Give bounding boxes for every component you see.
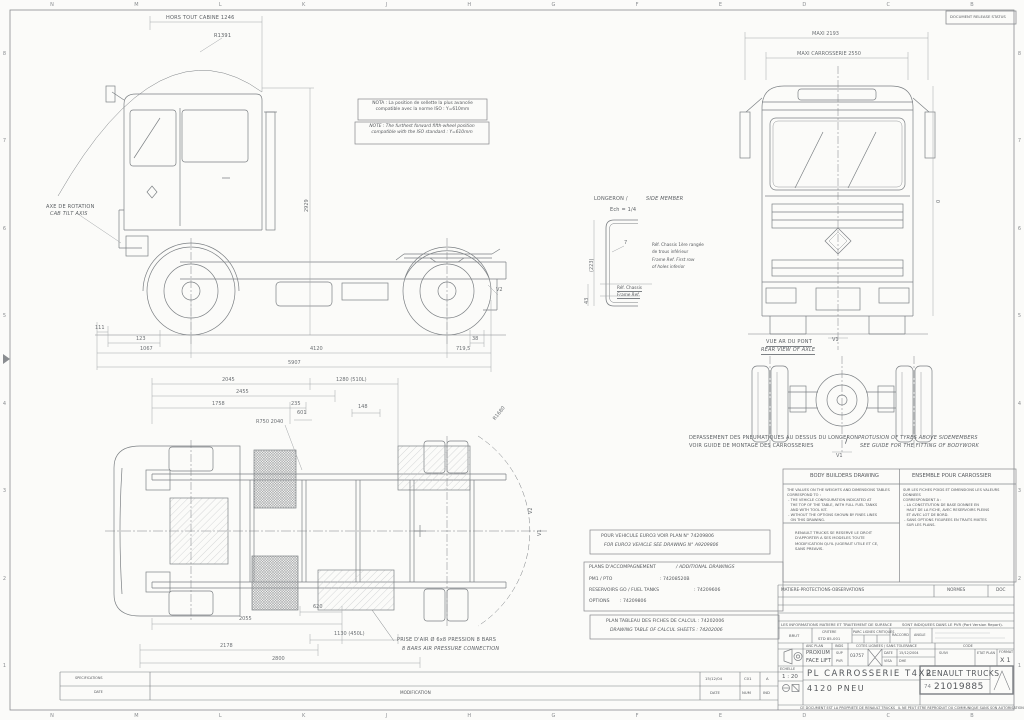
tb-etat: ETAT PLAN [977,651,995,655]
tb-critere: CRITERE [822,630,836,634]
dim-2055: 2055 [239,616,252,622]
longeron-title-en: SIDE MEMBER [646,196,683,202]
mod-header-modification: MODIFICATION [400,690,431,695]
tb-date-val: 15/12/2004 [899,651,919,655]
spec-date-label: DATE [94,690,103,694]
note-box-borders [355,99,1016,639]
dim-2178: 2178 [220,643,233,649]
release-stamp: DOCUMENT RELEASE STATUS [950,14,1006,19]
dim-v1-axle: V1 [836,453,843,459]
grid-row-label: 5 [1018,313,1021,319]
euro3-note-en: FOR EURO3 VEHICLE SEE DRAWING N° A920980… [604,543,718,548]
grid-col-label: H [467,713,471,719]
dim-5907: 5907 [288,360,301,366]
tb-critere-val: STD 85-001 [818,636,840,641]
dim-43: 43 [584,298,590,304]
grid-col-label: H [467,2,471,8]
grid-col-label: L [219,2,222,8]
tb-raccord: RACCORD [892,633,909,637]
ref-row-en1: Frame Ref. First row [652,257,694,262]
grid-row-label: 8 [1018,51,1021,57]
dim-620: 620 [313,604,323,610]
grid-row-label: 1 [1018,663,1021,669]
note-box-en: NOTE : The furthest forward fifth-wheel … [356,124,488,135]
dim-111: 111 [95,325,105,331]
grid-col-label: G [551,713,555,719]
dim-719: 719,5 [456,346,470,352]
tb-echelle-label: ECHELLE [780,667,795,671]
grid-row-label: 6 [1018,226,1021,232]
air-note-en: 8 BARS AIR PRESSURE CONNECTION [402,646,499,652]
additional-row-value: : 74209806 [620,599,646,604]
tb-code: CODE [963,644,973,648]
additional-row-label: OPTIONS [589,599,610,604]
cab-tilt-axis-fr: AXE DE ROTATION [46,204,95,210]
tb-date-label: DATE [884,651,893,655]
dim-maxi-2193: MAXI 2193 [812,31,839,37]
dim-web-7: 7 [624,240,627,246]
grid-row-label: 7 [3,138,6,144]
grid-col-label: K [302,713,305,719]
drawing-sheet: NMLKJHGFEDCB NMLKJHGFEDCB 87654321 87654… [0,0,1024,720]
grid-col-label: B [970,713,973,719]
mod-header-ind: IND [763,690,770,695]
grid-col-label: D [802,713,806,719]
dim-2045: 2045 [222,377,235,383]
tb-format-val: X 1 [1000,656,1011,664]
grid-cols-top: NMLKJHGFEDCB [10,0,1014,9]
grid-col-label: N [50,2,54,8]
bodybuilders-text-en: THE VALUES ON THE WEIGHTS AND DIMENSIONS… [787,488,897,523]
grid-col-label: J [386,2,387,8]
grid-row-label: 1 [3,663,6,669]
mod-header-num: NUM [742,690,751,695]
drawing-linework [0,0,1024,720]
dim-223: (223) [589,259,595,272]
mod-date-value: 15/12/04 [705,676,722,681]
longeron-scale: Ech = 1/4 [610,207,636,213]
calc-note-en: DRAWING TABLE OF CALCUL SHEETS : 7420200… [610,628,723,633]
tb-sup: SUP [836,651,843,655]
euro3-note-fr: POUR VEHICULE EURO3 VOIR PLAN N° 7420980… [601,534,714,539]
bodybuilders-reserve: RENAULT TRUCKS SE RESERVE LE DROIT D'APP… [795,530,897,551]
grid-col-label: C [886,2,890,8]
symbol-icons [783,685,800,692]
tb-brut: BRUT [789,633,799,638]
first-angle-projection-icon [784,649,802,664]
grid-col-label: D [802,2,806,8]
dim-maxi-carrosserie: MAXI CARROSSERIE 2550 [797,51,861,57]
tb-parc: PARC LIGNES CRITIQUES [853,630,894,634]
rear-axle-label-en: REAR VIEW OF AXLE [761,347,815,355]
tb-anc-plan: ANC PLAN [806,644,823,648]
dim-123: 123 [136,336,146,342]
tyre-note-en2: SEE GUIDE FOR THE FITTING OF BODYWORK [860,443,979,449]
grid-row-label: 3 [3,488,6,494]
grid-rows-right: 87654321 [1015,10,1024,710]
grid-col-label: L [219,713,222,719]
tb-visa-val: DHE [899,659,906,663]
grid-col-label: E [719,713,722,719]
tyre-note-en1: PROTUSION OF TYRES ABOVE SIDEMEMBERS [858,435,978,441]
grid-col-label: M [134,2,138,8]
tb-suivi: SUIVI [939,651,948,655]
drawing-number-prefix: 74 [924,684,931,690]
ref-row-fr1: Réf. Chassis 1ère rangée [652,242,704,247]
tyre-note-separator: / [845,436,848,446]
tb-visa-label: VISA [884,659,892,663]
dim-2800: 2800 [272,656,285,662]
mod-num-value: C01 [744,676,751,681]
bodybuilders-text-fr: SUR LES FICHES POIDS ET DIMENSIONS LES V… [903,488,1015,528]
tb-model1: PROXIUM [806,650,830,656]
dim-v2-plan: V2 [528,507,534,514]
dim-1758: 1758 [212,401,225,407]
additional-row-value: : 74209606 [694,588,720,593]
ref-row-fr2: de trous inférieur [652,249,688,254]
dim-1130: 1130 (450L) [334,631,365,637]
dim-38: 38 [472,336,478,342]
front-view [740,66,935,350]
dim-zero-front: 0 [936,200,942,203]
additional-title-en: / ADDITIONAL DRAWINGS [676,565,735,570]
grid-row-label: 8 [3,51,6,57]
additional-title-fr: PLANS D'ACCOMPAGNEMENT [589,565,656,570]
dim-148: 148 [358,404,368,410]
tb-cotes: COTES LIGNEES / SANS TOLERANCE [856,644,917,648]
rear-axle-label-fr: VUE AR DU PONT [766,339,812,347]
grid-col-label: K [302,2,305,8]
calc-note-fr: PLAN TABLEAU DES FICHES DE CALCUL : 7420… [606,619,724,624]
tb-info-right: SONT INDIQUEES DANS LE PVR (Part Version… [902,622,1003,627]
dim-cab-overall: HORS TOUT CABINE 1246 [166,15,234,21]
grid-col-label: G [551,2,555,8]
grid-row-label: 2 [1018,576,1021,582]
tyre-note-fr1: DEPASSEMENT DES PNEUMATIQUES AU DESSUS D… [689,435,858,441]
grid-col-label: J [386,713,387,719]
additional-row-value: : 74208520B [660,577,690,582]
dim-1067: 1067 [140,346,153,352]
mod-ind-value: A [766,676,769,681]
tb-inds: INDS [835,644,843,648]
bodybuilders-header-en: BODY BUILDERS DRAWING [810,473,879,479]
ref-chassis-fr: Réf. Chassis [617,285,642,292]
dim-cab-radius: R1391 [214,33,231,39]
dim-235: 235 [291,401,301,407]
dim-v1-plan: V1 [537,529,543,536]
tb-echelle-val: 1 : 20 [782,674,798,680]
grid-row-label: 5 [3,313,6,319]
drawing-number: 21019885 [934,682,984,692]
grid-row-label: 4 [1018,401,1021,407]
grid-col-label: B [970,2,973,8]
drawing-title: PL CARROSSERIE T4X2 [807,669,933,679]
grid-col-label: E [719,2,722,8]
grid-row-label: 4 [3,401,6,407]
grid-col-label: M [134,713,138,719]
grid-rows-left: 87654321 [0,10,9,710]
tyre-note-fr2: VOIR GUIDE DE MONTAGE DES CARROSSERIES [689,443,814,449]
dim-r750: R750 2040 [256,419,283,425]
grid-col-label: F [636,2,639,8]
drawing-subtitle: 4120 PNEU [807,684,865,693]
grid-row-label: 3 [1018,488,1021,494]
tb-ref-num: 03757 [850,654,864,659]
tb-doc: DOC [996,587,1005,592]
cab-tilt-axis-en: CAB TILT AXIS [50,211,88,217]
tb-format-label: FORMAT [999,650,1013,654]
plan-view [105,436,548,641]
dim-v2-side: V2 [496,287,503,293]
grid-col-label: F [636,713,639,719]
ref-chassis-en: Frame Ref. [617,292,640,299]
company-name: RENAULT TRUCKS [926,669,1000,678]
dim-v1-front: V1 [832,337,839,343]
spec-label: SPECIFICATIONS [75,676,103,680]
tb-model2: FACE LIFT [806,658,831,664]
additional-row-label: RESERVOIRS GO / FUEL TANKS [589,588,659,593]
tb-matiere: MATIERE-PROTECTIONS-OBSERVATIONS [781,587,864,592]
bodybuilders-header-fr: ENSEMBLE POUR CARROSSIER [912,473,991,479]
tb-normes: NORMES [947,587,965,592]
side-view-dims [78,16,498,372]
grid-cols-bottom: NMLKJHGFEDCB [10,711,1014,720]
grid-col-label: C [886,713,890,719]
grid-row-label: 6 [3,226,6,232]
tb-angle: ANGLE [914,633,926,637]
dim-601: 601 [297,410,307,416]
dim-1280: 1280 (510L) [336,377,367,383]
longeron-title-fr: LONGERON / [594,196,628,202]
grid-row-label: 7 [1018,138,1021,144]
grid-col-label: N [50,713,54,719]
dim-4120: 4120 [310,346,323,352]
additional-row-label: PM1 / PTO [589,577,612,582]
mod-header-date: DATE [710,690,720,695]
nota-box-fr: NOTA : La position de sellette la plus a… [359,101,486,112]
tb-legal-right: IL NE PEUT ETRE REPRODUIT OU COMMUNIQUE … [898,706,1024,710]
dim-height: 2929 [304,199,310,212]
grid-row-label: 2 [3,576,6,582]
dim-2455: 2455 [236,389,249,395]
tb-info-left: LES INFORMATIONS MATIERE ET TRAITEMENT D… [781,622,892,627]
tb-legal-left: CE DOCUMENT EST LA PROPRIETE DE RENAULT … [800,706,895,710]
air-note-fr: PRISE D'AIR Ø 6x8 PRESSION 8 BARS [397,637,496,643]
ref-row-en2: of holes inferior [652,264,685,269]
tb-pvr: PVR [836,659,843,663]
